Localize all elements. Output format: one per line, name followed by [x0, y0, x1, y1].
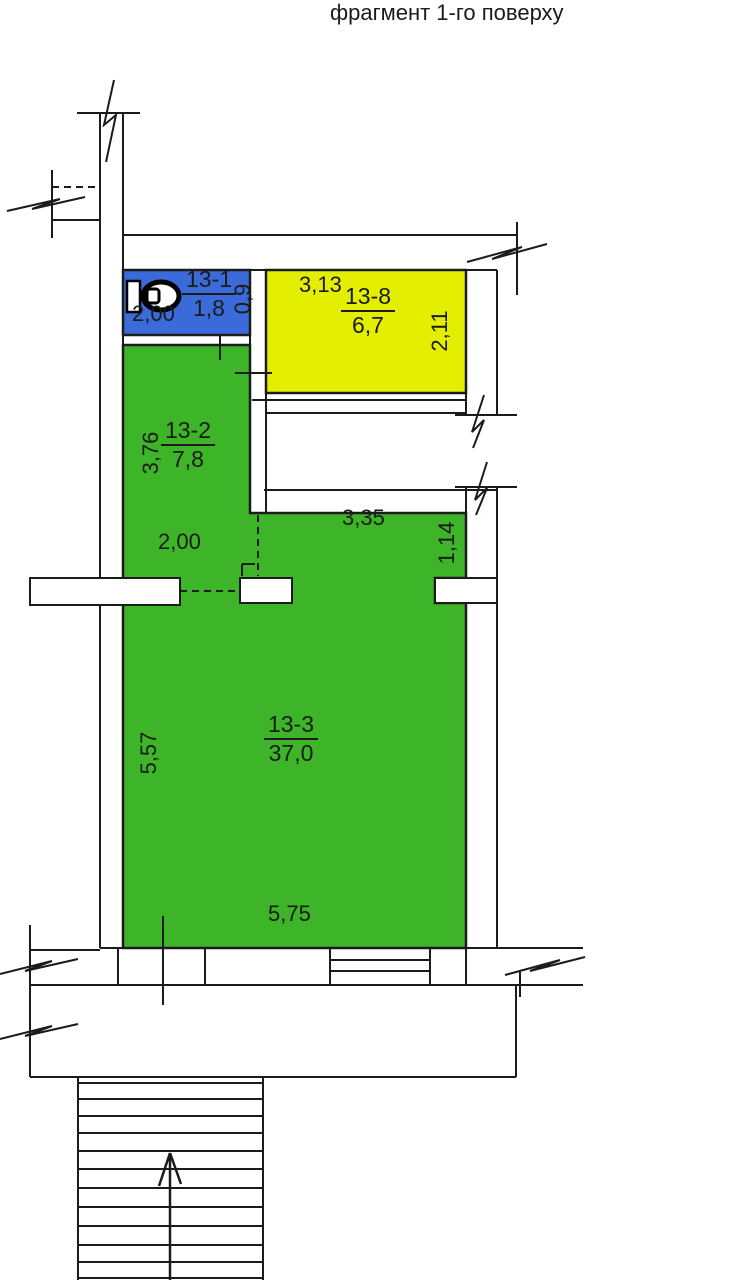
dim-13-8-depth: 2,11: [427, 310, 453, 351]
dim-13-3-width: 5,75: [268, 901, 311, 927]
break-mark-bottom-right: [505, 957, 585, 975]
break-mark-right-opening-bottom: [475, 462, 487, 515]
dim-corridor-depth: 1,14: [434, 522, 460, 565]
room-13-2-number: 13-2: [161, 418, 215, 446]
pier-left: [30, 578, 180, 605]
room-13-3-area: 37,0: [258, 740, 324, 766]
pier-middle: [240, 578, 292, 603]
break-mark-top-left: [104, 80, 116, 162]
room-13-8-label: 13-8 6,7: [335, 284, 401, 338]
room-13-2-area: 7,8: [160, 446, 216, 472]
room-13-8-area: 6,7: [335, 312, 401, 338]
floor-plan-page: фрагмент 1-го поверху: [0, 0, 748, 1280]
break-mark-top-right: [467, 244, 547, 262]
room-13-3-label: 13-3 37,0: [258, 712, 324, 766]
dim-13-1-depth: 0,9: [230, 284, 256, 315]
break-mark-right-opening-top: [472, 395, 484, 448]
room-13-1-number: 13-1: [182, 267, 236, 295]
dim-13-1-width: 2,00: [132, 301, 175, 327]
break-mark-left-stub: [7, 197, 85, 211]
room-13-8-number: 13-8: [341, 284, 395, 312]
break-mark-bottom-left-1: [0, 959, 78, 974]
pier-right-stub: [435, 578, 497, 603]
floor-plan-drawing: [0, 0, 748, 1280]
dim-corridor-width: 3,35: [342, 505, 385, 531]
dim-13-2-height: 3,76: [138, 432, 164, 475]
break-mark-bottom-left-2: [0, 1024, 78, 1039]
stairs-up-arrow-icon: [159, 1153, 181, 1280]
room-13-3-number: 13-3: [264, 712, 318, 740]
dim-13-3-height: 5,57: [136, 732, 162, 775]
dim-13-2-opening: 2,00: [158, 529, 201, 555]
room-13-2-label: 13-2 7,8: [160, 418, 216, 472]
stairs: [78, 1077, 263, 1280]
